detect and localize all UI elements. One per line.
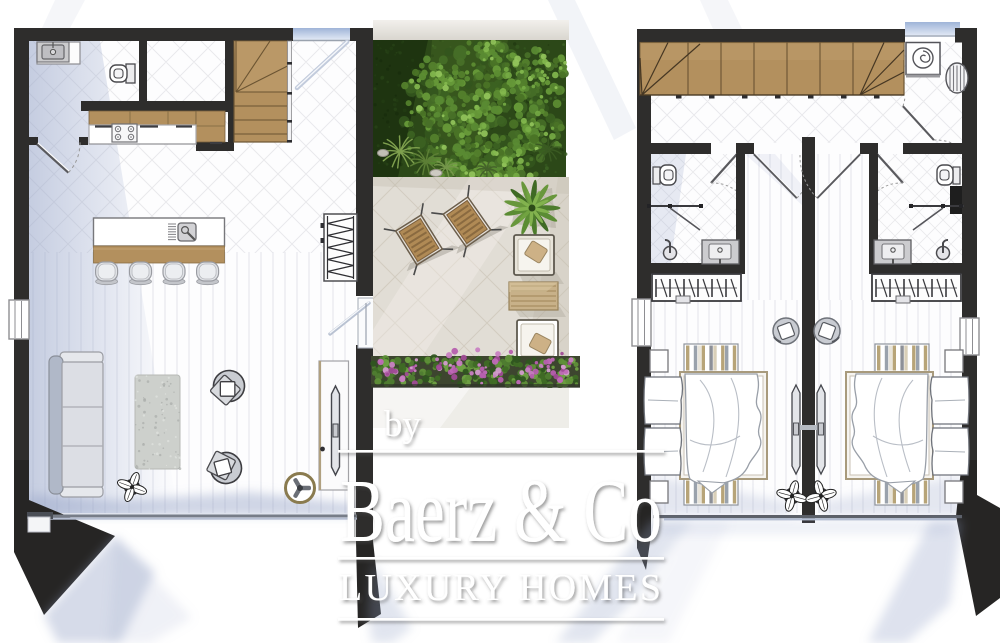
svg-text:by: by: [384, 404, 422, 445]
svg-text:Baerz & Co: Baerz & Co: [340, 462, 662, 561]
